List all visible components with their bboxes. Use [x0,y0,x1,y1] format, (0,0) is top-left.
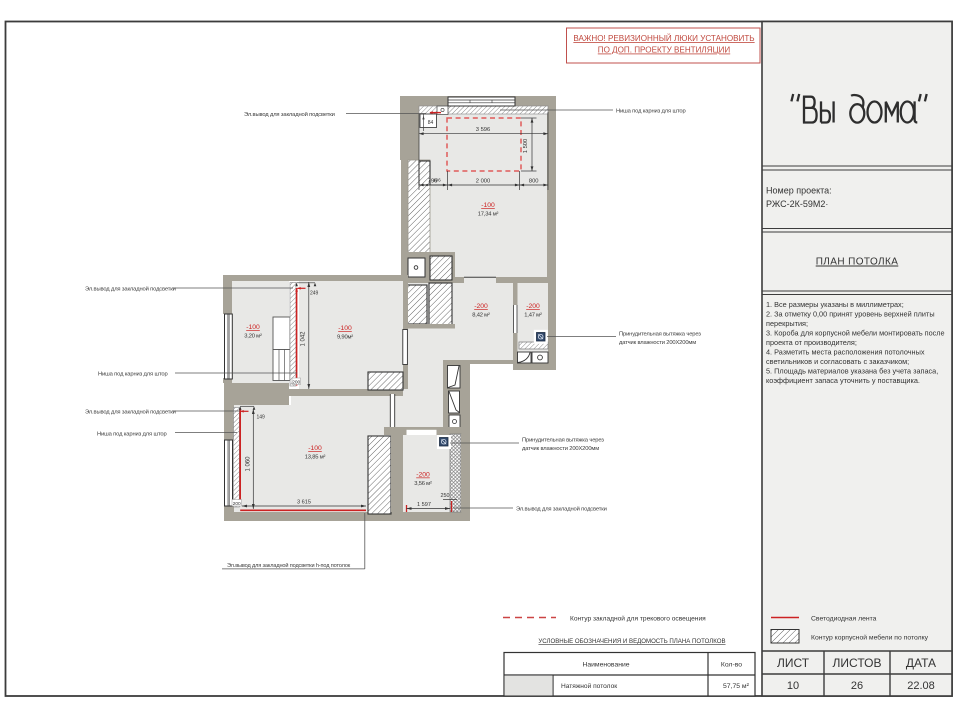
svg-text:ДАТА: ДАТА [906,656,936,670]
svg-text:светильников и согласовать с з: светильников и согласовать с заказчиком; [766,357,909,366]
svg-text:-100: -100 [338,325,352,332]
svg-text:РЖС-2К-59М2·: РЖС-2К-59М2· [766,199,828,209]
svg-text:Кол-во: Кол-во [721,662,742,669]
svg-text:1. Все размеры указаны в милли: 1. Все размеры указаны в миллиметрах; [766,300,904,309]
svg-text:-100: -100 [481,202,495,209]
svg-text:9,90м²: 9,90м² [337,335,353,341]
svg-text:2 000: 2 000 [476,178,491,184]
svg-text:3. Короба для корпусной мебели: 3. Короба для корпусной мебели монтирова… [766,329,945,338]
svg-text:1 597: 1 597 [417,502,431,508]
svg-text:перекрытия;: перекрытия; [766,319,808,328]
svg-text:800: 800 [529,178,539,184]
svg-text:Эл.вывод для закладной подсвет: Эл.вывод для закладной подсветки [244,111,335,118]
svg-text:коэффициент запаса уточнить у: коэффициент запаса уточнить у поставщика… [766,376,920,385]
svg-text:Натяжной потолок: Натяжной потолок [561,682,617,690]
svg-text:-100: -100 [308,445,322,452]
svg-text:-200: -200 [526,303,540,310]
svg-text:ЛИСТОВ: ЛИСТОВ [833,656,882,670]
svg-text:22.08: 22.08 [907,680,935,692]
svg-text:17,34 м²: 17,34 м² [478,212,499,218]
svg-text:Ниша под карниз для штор: Ниша под карниз для штор [616,109,686,115]
svg-text:3 615: 3 615 [297,500,311,506]
svg-text:-200: -200 [474,303,488,310]
svg-text:149: 149 [257,415,266,421]
svg-text:Светодиодная лента: Светодиодная лента [811,616,877,623]
svg-text:Номер проекта:: Номер проекта: [766,186,832,196]
svg-text:ЛИСТ: ЛИСТ [777,656,810,670]
svg-text:ПЛАН ПОТОЛКА: ПЛАН ПОТОЛКА [816,257,899,268]
svg-text:10: 10 [787,680,799,692]
svg-text:796: 796 [428,178,438,184]
svg-text:250: 250 [441,493,450,499]
svg-text:ПО ДОП. ПРОЕКТУ ВЕНТИЛЯЦИИ: ПО ДОП. ПРОЕКТУ ВЕНТИЛЯЦИИ [598,46,731,55]
svg-text:Эл.вывод для закладной подсвет: Эл.вывод для закладной подсветки [85,409,176,416]
svg-text:Эл.вывод для закладной подсвет: Эл.вывод для закладной подсветки h-под п… [227,562,351,569]
svg-text:3 596: 3 596 [476,127,491,133]
svg-text:проекта от производителя;: проекта от производителя; [766,338,857,347]
svg-text:200: 200 [233,501,241,507]
svg-text:Эл.вывод для закладной подсвет: Эл.вывод для закладной подсветки [516,506,607,513]
svg-text:57,75 м²: 57,75 м² [723,683,750,690]
svg-text:Принудительная вытяжка через: Принудительная вытяжка через [522,438,604,444]
svg-text:8,42 м²: 8,42 м² [472,313,490,319]
svg-text:26: 26 [851,680,863,692]
svg-text:Ниша под карниз для штор: Ниша под карниз для штор [97,432,167,438]
svg-text:1 060: 1 060 [246,456,252,472]
svg-text:датчик влажности 200Х200мм: датчик влажности 200Х200мм [522,446,599,452]
svg-text:1 500: 1 500 [523,139,529,154]
svg-text:200: 200 [292,379,300,385]
svg-text:Наименование: Наименование [582,662,629,669]
svg-text:датчик влажности 200Х200мм: датчик влажности 200Х200мм [619,340,696,346]
svg-text:84: 84 [428,120,434,126]
svg-text:3,20 м²: 3,20 м² [244,334,262,340]
svg-text:1,47 м²: 1,47 м² [524,313,542,319]
svg-text:3,56 м²: 3,56 м² [414,481,432,487]
svg-text:УСЛОВНЫЕ ОБОЗНАЧЕНИЯ И ВЕДОМОС: УСЛОВНЫЕ ОБОЗНАЧЕНИЯ И ВЕДОМОСТЬ ПЛАНА П… [538,638,725,645]
svg-text:249: 249 [310,291,319,297]
svg-text:Эл.вывод для закладной подсвет: Эл.вывод для закладной подсветки [85,286,176,293]
svg-text:Контур корпусной мебели по пот: Контур корпусной мебели по потолку [811,634,929,642]
svg-text:13,85 м²: 13,85 м² [305,455,326,461]
svg-text:1 042: 1 042 [301,331,307,347]
svg-text:2. За отметку 0,00 принят уров: 2. За отметку 0,00 принят уровень верхне… [766,310,935,319]
svg-text:-100: -100 [246,324,260,331]
svg-text:Принудительная вытяжка через: Принудительная вытяжка через [619,332,701,338]
svg-text:5. Площадь материалов указана: 5. Площадь материалов указана без учета … [766,367,938,376]
svg-text:Ниша под карниз для штор: Ниша под карниз для штор [98,372,168,378]
svg-text:-200: -200 [416,472,430,479]
svg-text:Контур закладной для трекового: Контур закладной для трекового освещения [570,615,706,623]
svg-text:ВАЖНО! РЕВИЗИОННЫЙ ЛЮКИ УСТАНО: ВАЖНО! РЕВИЗИОННЫЙ ЛЮКИ УСТАНОВИТЬ [573,34,754,43]
svg-text:4. Разметить места расположени: 4. Разметить места расположения потолочн… [766,348,925,357]
